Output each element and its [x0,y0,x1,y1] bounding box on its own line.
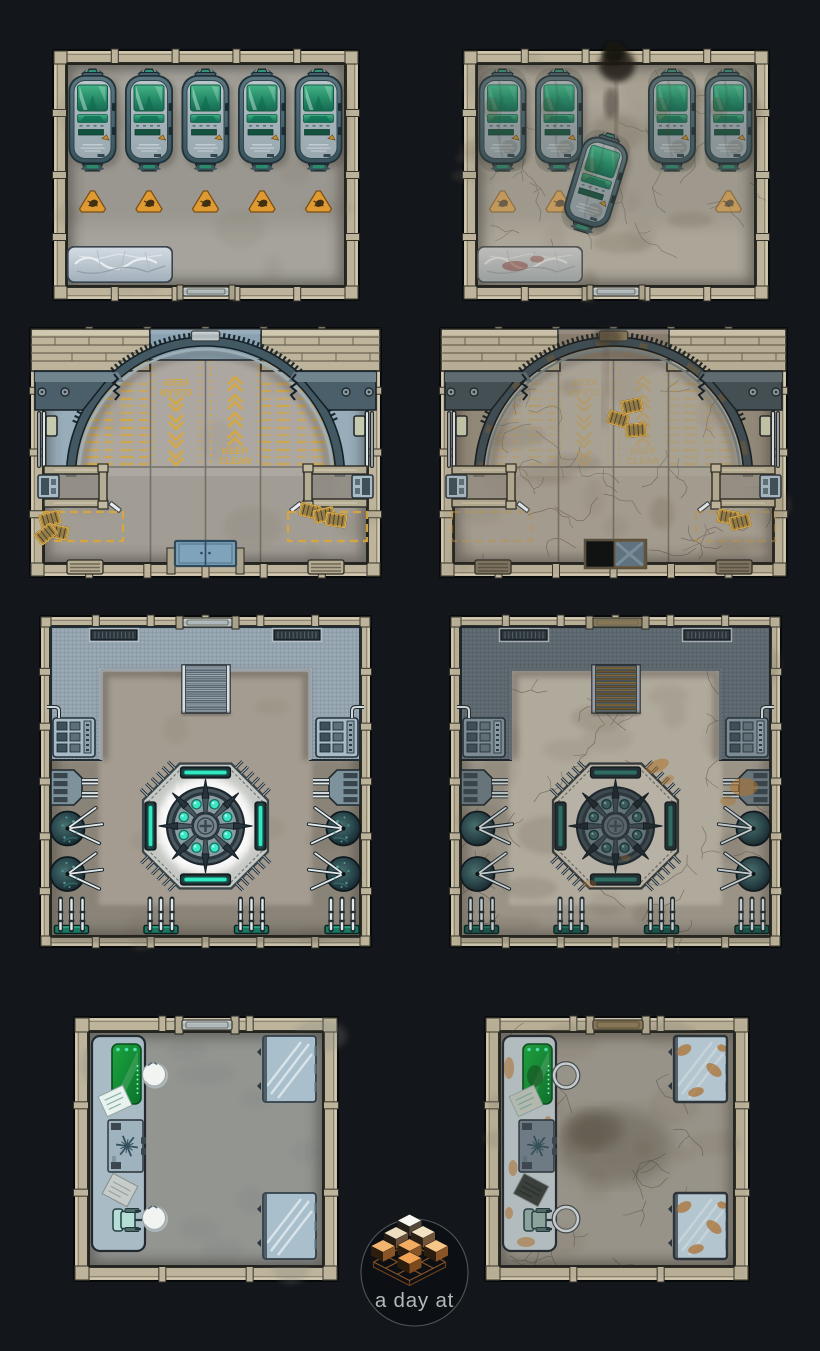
svg-text:CLEAR: CLEAR [219,456,252,467]
svg-text:KEEP: KEEP [162,376,189,387]
svg-text:a day at: a day at [375,1289,454,1312]
